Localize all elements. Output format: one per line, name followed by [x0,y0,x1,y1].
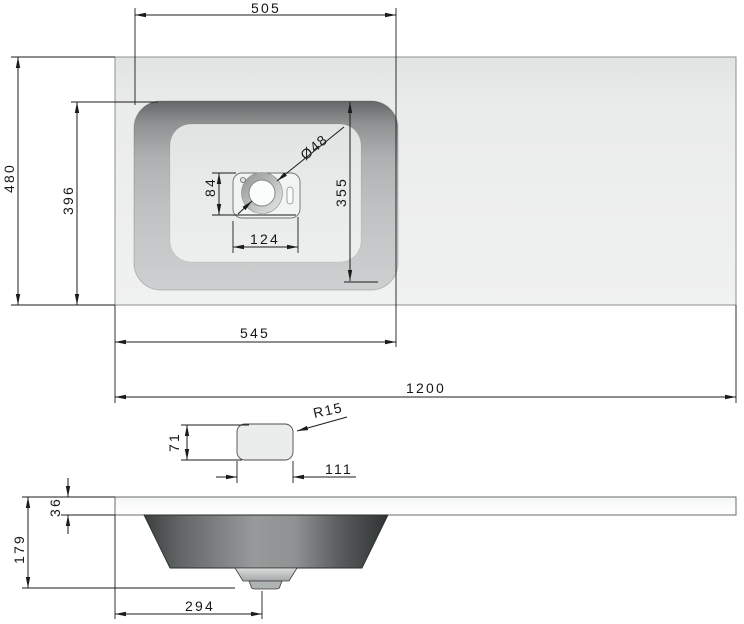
dim-480-label: 480 [1,163,17,193]
dim-71-label: 71 [166,432,182,452]
faucet-hole [249,180,275,206]
top-view: 505 480 396 355 84 [1,0,736,403]
dim-36-label: 36 [47,497,63,517]
dim-countertop-depth: 480 [1,57,115,305]
dim-1200-label: 1200 [406,380,446,396]
overflow-slot [287,187,293,204]
dim-111-label: 111 [325,461,353,477]
dim-179-label: 179 [11,534,27,564]
detail-view: 71 R15 111 [166,399,356,483]
dim-countertop-width: 1200 [115,305,736,403]
pilot-hole [240,177,245,182]
faucet-plate [233,173,300,219]
drain-outlet [249,581,282,589]
plate-profile [237,424,293,460]
technical-drawing: 505 480 396 355 84 [0,0,744,624]
dim-corner-radius: R15 [297,399,347,431]
dim-basin-zone-width: 545 [115,305,396,403]
dim-84-label: 84 [202,177,218,197]
dim-294-label: 294 [185,598,215,614]
dim-396-label: 396 [60,185,76,215]
dim-slab-thickness: 36 [22,478,115,534]
dim-355-label: 355 [333,177,349,207]
dim-545-label: 545 [240,325,270,341]
drain-flange [235,568,297,581]
dim-plate-width: 111 [216,461,356,483]
dim-505-label: 505 [251,0,281,16]
countertop-slab-profile [115,497,736,515]
side-view: 36 179 294 [11,478,736,619]
dim-124-label: 124 [250,231,280,247]
dim-r15-label: R15 [312,399,345,421]
basin-bowl-profile [144,515,388,568]
drawing-canvas: 505 480 396 355 84 [0,0,744,624]
